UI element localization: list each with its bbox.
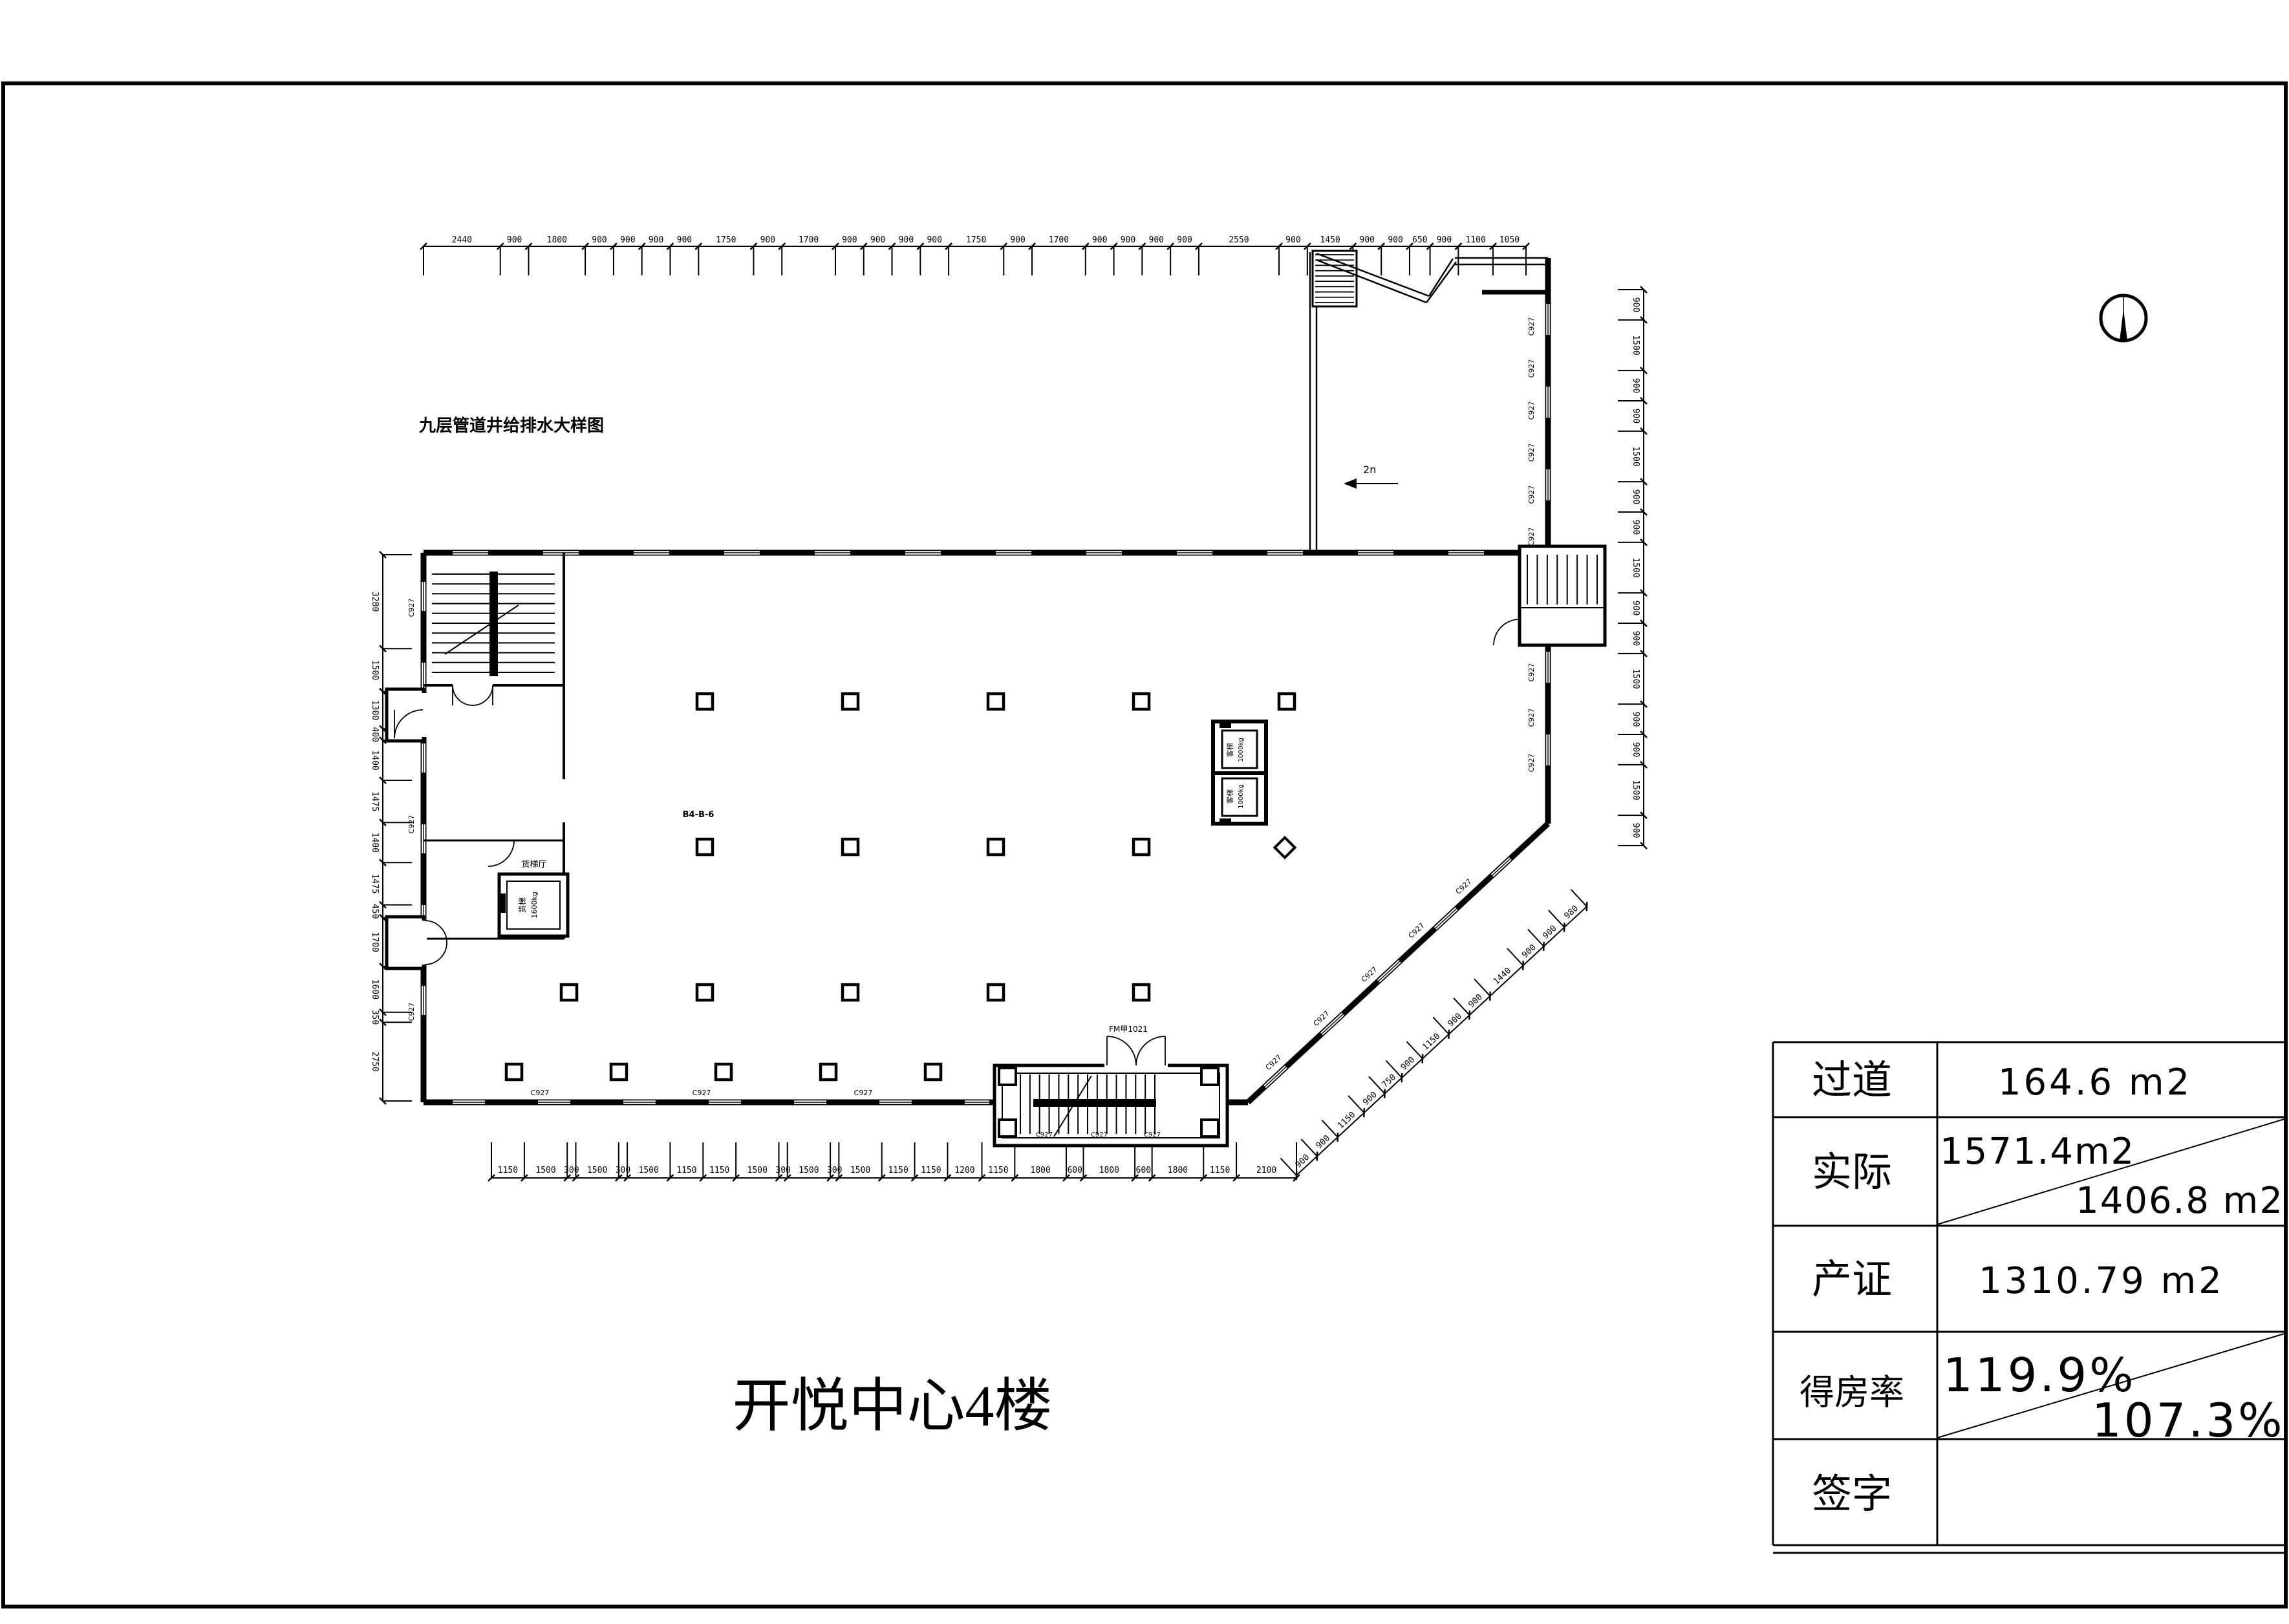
window-tag: C927 bbox=[1527, 443, 1536, 462]
svg-text:1500: 1500 bbox=[1631, 335, 1640, 355]
window-tag: C927 bbox=[1527, 317, 1536, 336]
svg-text:900: 900 bbox=[677, 235, 692, 245]
svg-text:1050: 1050 bbox=[1499, 235, 1520, 245]
svg-text:900: 900 bbox=[1399, 1055, 1417, 1073]
svg-text:900: 900 bbox=[1631, 297, 1640, 312]
svg-text:900: 900 bbox=[1388, 235, 1402, 245]
table-row-value: 1310.79 m2 bbox=[1979, 1260, 2224, 1302]
window-tag: C927 bbox=[1527, 709, 1536, 727]
svg-text:1150: 1150 bbox=[1421, 1032, 1442, 1052]
window-tags: C927 C927 C927 C927 C927 C927 C927 C927 … bbox=[407, 317, 1536, 1138]
svg-text:1500: 1500 bbox=[850, 1166, 870, 1175]
dim-strip-right: 9001500900900150090090015009009001500900… bbox=[1618, 286, 1647, 849]
svg-text:1150: 1150 bbox=[888, 1166, 908, 1175]
svg-text:900: 900 bbox=[760, 235, 775, 245]
svg-text:900: 900 bbox=[1360, 235, 1375, 245]
svg-text:900: 900 bbox=[649, 235, 663, 245]
svg-text:900: 900 bbox=[1315, 1133, 1332, 1151]
freight-elevator: 货梯 1600kg 货梯厅 bbox=[488, 840, 568, 936]
wing-stair bbox=[1313, 251, 1357, 306]
svg-text:600: 600 bbox=[1067, 1166, 1082, 1175]
svg-text:900: 900 bbox=[1467, 992, 1484, 1010]
window-tag: C927 bbox=[693, 1089, 711, 1097]
svg-text:900: 900 bbox=[507, 235, 522, 245]
svg-text:400: 400 bbox=[370, 727, 380, 742]
freight-lift-capacity: 1600kg bbox=[530, 892, 539, 918]
svg-text:900: 900 bbox=[1437, 235, 1452, 245]
elevator-core: 客梯 1000kg 客梯 1000kg bbox=[1213, 721, 1295, 858]
svg-text:900: 900 bbox=[1631, 520, 1640, 535]
svg-text:900: 900 bbox=[1177, 235, 1192, 245]
svg-text:900: 900 bbox=[1631, 823, 1640, 838]
svg-text:900: 900 bbox=[1631, 378, 1640, 393]
svg-text:1150: 1150 bbox=[709, 1166, 729, 1175]
svg-text:1440: 1440 bbox=[1492, 966, 1513, 987]
svg-text:2550: 2550 bbox=[1229, 235, 1249, 245]
svg-text:900: 900 bbox=[1631, 489, 1640, 504]
escalator-arrow-icon bbox=[1344, 478, 1357, 489]
svg-text:900: 900 bbox=[1149, 235, 1164, 245]
svg-text:1475: 1475 bbox=[370, 791, 380, 811]
table-row-value-bottom: 107.3% bbox=[2092, 1393, 2285, 1448]
freight-lift-label: 货梯 bbox=[517, 897, 527, 913]
svg-text:900: 900 bbox=[1631, 601, 1640, 615]
svg-text:1750: 1750 bbox=[716, 235, 736, 245]
table-row-value-top: 1571.4m2 bbox=[1940, 1131, 2135, 1173]
svg-text:900: 900 bbox=[1631, 712, 1640, 727]
svg-text:980: 980 bbox=[1563, 904, 1580, 921]
room-code: B4-B-6 bbox=[683, 810, 715, 820]
svg-text:900: 900 bbox=[1631, 409, 1640, 423]
window-tag: C927 bbox=[1527, 359, 1536, 378]
svg-text:2750: 2750 bbox=[370, 1051, 380, 1071]
freight-hall-label: 货梯厅 bbox=[521, 859, 546, 870]
svg-text:1500: 1500 bbox=[535, 1166, 555, 1175]
dim-strip-left: 3280150013004001400147514001475450170016… bbox=[370, 551, 412, 1104]
svg-text:1800: 1800 bbox=[547, 235, 567, 245]
svg-text:300: 300 bbox=[775, 1166, 790, 1175]
window-tag: C927 bbox=[854, 1089, 873, 1097]
window-tag: C927 bbox=[1527, 401, 1536, 420]
svg-text:350: 350 bbox=[370, 1010, 380, 1025]
svg-text:900: 900 bbox=[1631, 631, 1640, 646]
window-tag: C927 bbox=[1527, 528, 1536, 546]
svg-text:900: 900 bbox=[620, 235, 635, 245]
svg-text:1100: 1100 bbox=[1465, 235, 1485, 245]
svg-text:900: 900 bbox=[927, 235, 941, 245]
floor-title: 开悦中心4楼 bbox=[733, 1374, 1053, 1438]
stair-right bbox=[1494, 546, 1605, 645]
svg-text:1150: 1150 bbox=[1210, 1166, 1230, 1175]
svg-text:1500: 1500 bbox=[1631, 446, 1640, 466]
svg-text:1700: 1700 bbox=[1049, 235, 1069, 245]
vestibule-doors-left bbox=[387, 689, 447, 968]
svg-text:1475: 1475 bbox=[370, 873, 380, 893]
svg-text:450: 450 bbox=[370, 904, 380, 919]
stair-bottom: FM甲1021 bbox=[994, 1025, 1227, 1146]
window-tag: C927 bbox=[1036, 1131, 1053, 1138]
svg-text:1150: 1150 bbox=[1336, 1110, 1357, 1131]
window-tag: C927 bbox=[531, 1089, 550, 1097]
fire-door-tag: FM甲1021 bbox=[1109, 1025, 1148, 1034]
svg-text:750: 750 bbox=[1381, 1073, 1398, 1090]
svg-text:2100: 2100 bbox=[1256, 1166, 1276, 1175]
svg-text:1700: 1700 bbox=[799, 235, 819, 245]
svg-text:900: 900 bbox=[1446, 1012, 1463, 1029]
passenger-lift-1-capacity: 1000kg bbox=[1238, 738, 1245, 762]
svg-text:300: 300 bbox=[827, 1166, 842, 1175]
passenger-lift-2-capacity: 1000kg bbox=[1238, 784, 1245, 809]
svg-text:650: 650 bbox=[1412, 235, 1427, 245]
svg-text:900: 900 bbox=[1631, 742, 1640, 757]
svg-text:1500: 1500 bbox=[1631, 557, 1640, 577]
svg-text:1600: 1600 bbox=[370, 979, 380, 999]
svg-text:900: 900 bbox=[1285, 235, 1300, 245]
svg-text:1400: 1400 bbox=[370, 750, 380, 770]
svg-text:900: 900 bbox=[1092, 235, 1107, 245]
column-grid bbox=[506, 694, 1295, 1080]
svg-text:2440: 2440 bbox=[452, 235, 472, 245]
svg-text:1800: 1800 bbox=[1099, 1166, 1119, 1175]
svg-text:600: 600 bbox=[1136, 1166, 1151, 1175]
svg-text:1400: 1400 bbox=[370, 833, 380, 853]
table-row-label: 实际 bbox=[1812, 1151, 1892, 1195]
svg-text:300: 300 bbox=[564, 1166, 579, 1175]
north-arrow-icon bbox=[2101, 295, 2146, 341]
window-tag: C927 bbox=[1144, 1131, 1161, 1138]
svg-text:1150: 1150 bbox=[988, 1166, 1008, 1175]
svg-text:1150: 1150 bbox=[676, 1166, 696, 1175]
floorplan-canvas: 2440900180090090090090017509001700900900… bbox=[0, 0, 2289, 1624]
drawing-sheet: 2440900180090090090090017509001700900900… bbox=[0, 0, 2289, 1624]
note-topleft: 九层管道井给排水大样图 bbox=[418, 416, 604, 435]
svg-text:1500: 1500 bbox=[799, 1166, 819, 1175]
dim-strip-bottom: 1150150030015003001500115011501500300150… bbox=[488, 1142, 1300, 1181]
window-tag: C927 bbox=[407, 599, 416, 617]
svg-text:900: 900 bbox=[899, 235, 914, 245]
svg-text:3280: 3280 bbox=[370, 592, 380, 612]
passenger-lift-2-label: 客梯 bbox=[1225, 789, 1234, 804]
table-row-value-bottom: 1406.8 m2 bbox=[2076, 1180, 2284, 1222]
svg-text:1200: 1200 bbox=[954, 1166, 974, 1175]
table-row-label: 签字 bbox=[1812, 1473, 1892, 1517]
svg-text:1300: 1300 bbox=[370, 700, 380, 720]
svg-text:900: 900 bbox=[870, 235, 885, 245]
svg-text:900: 900 bbox=[1121, 235, 1135, 245]
window-tag: C927 bbox=[407, 815, 416, 834]
window-tag: C927 bbox=[1527, 663, 1536, 682]
window-tag: C927 bbox=[407, 1003, 416, 1021]
svg-text:1150: 1150 bbox=[921, 1166, 941, 1175]
svg-text:1500: 1500 bbox=[1631, 780, 1640, 800]
svg-text:900: 900 bbox=[592, 235, 607, 245]
svg-text:1800: 1800 bbox=[1031, 1166, 1051, 1175]
svg-text:1750: 1750 bbox=[966, 235, 986, 245]
svg-text:1150: 1150 bbox=[498, 1166, 518, 1175]
area-table: 过道 实际 产证 得房率 签字 164.6 m2 1571.4m2 1406.8… bbox=[1773, 1042, 2286, 1553]
svg-text:1500: 1500 bbox=[639, 1166, 659, 1175]
svg-text:1700: 1700 bbox=[370, 932, 380, 952]
svg-text:1800: 1800 bbox=[1168, 1166, 1188, 1175]
table-row-label: 产证 bbox=[1812, 1258, 1892, 1302]
escalator-direction-label: 2n bbox=[1363, 464, 1376, 476]
svg-text:900: 900 bbox=[1010, 235, 1025, 245]
svg-text:1500: 1500 bbox=[1631, 668, 1640, 689]
svg-text:1500: 1500 bbox=[587, 1166, 607, 1175]
outer-walls bbox=[424, 252, 1548, 1102]
svg-text:900: 900 bbox=[1361, 1090, 1379, 1107]
svg-text:1500: 1500 bbox=[370, 660, 380, 680]
svg-text:300: 300 bbox=[616, 1166, 630, 1175]
svg-text:900: 900 bbox=[1520, 943, 1538, 960]
svg-text:900: 900 bbox=[842, 235, 857, 245]
passenger-lift-1-label: 客梯 bbox=[1225, 743, 1234, 757]
svg-text:1450: 1450 bbox=[1320, 235, 1340, 245]
window-tag: C927 bbox=[1527, 486, 1536, 504]
table-row-value: 164.6 m2 bbox=[1998, 1062, 2192, 1104]
svg-text:1500: 1500 bbox=[747, 1166, 768, 1175]
window-tag: C927 bbox=[1091, 1131, 1108, 1138]
window-tag: C927 bbox=[1527, 754, 1536, 773]
table-row-label: 得房率 bbox=[1800, 1373, 1904, 1412]
dim-strip-top: 2440900180090090090090017509001700900900… bbox=[420, 235, 1529, 275]
svg-text:900: 900 bbox=[1541, 924, 1558, 941]
table-row-label: 过道 bbox=[1812, 1059, 1892, 1103]
